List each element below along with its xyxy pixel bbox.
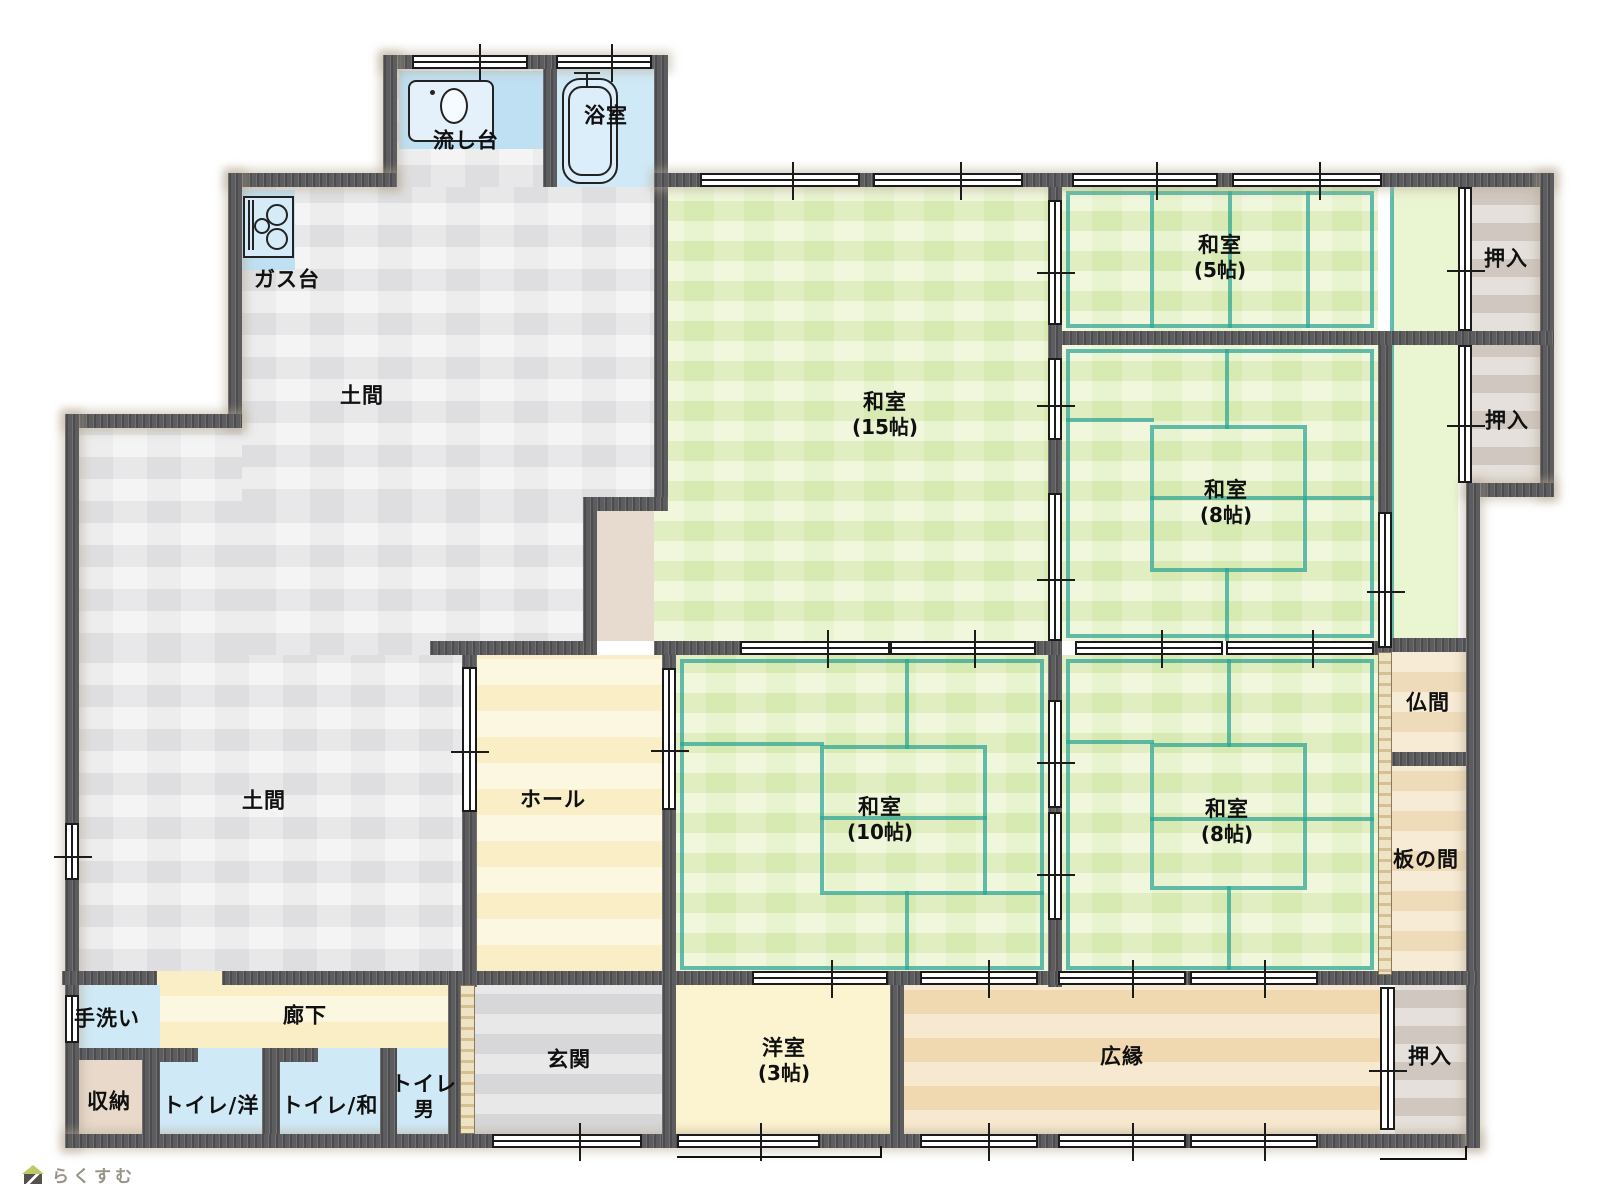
room-label-washitsu8-btm: 和室(8帖) [1201,797,1253,847]
room-doma-upper2 [242,511,583,655]
room-hall [477,655,662,971]
tatami-line [680,742,824,746]
window [412,55,528,69]
fusuma-door [1226,641,1374,655]
wall [142,1048,198,1062]
entrance-door [492,1134,642,1148]
step-area [597,511,654,641]
tatami-line [1066,418,1154,422]
room-label-doma1: 土間 [340,384,384,409]
tatami-line [1150,817,1374,821]
fusuma-door [890,641,1036,655]
shoji-door [1378,652,1392,975]
tatami-line [1225,568,1229,641]
tatami-line [1227,886,1231,970]
tatami-line [1150,191,1154,328]
wall [228,173,397,187]
sliding-door [1058,971,1186,985]
tatami-line [1066,740,1154,744]
shoji-door [460,985,475,1134]
wall [228,173,242,428]
fusuma-door [1048,700,1062,808]
wall [62,971,157,985]
fusuma-door [1048,358,1062,440]
wall [583,497,597,655]
sliding-door [1072,173,1218,187]
wall [654,641,740,655]
tatami-line [1306,191,1310,328]
sliding-door [677,1134,820,1148]
wall [430,641,597,655]
room-label-washitsu5: 和室(5帖) [1194,233,1246,283]
room-label-toilet-wa: トイレ/和 [282,1094,379,1119]
tatami-line [905,659,909,749]
wall [262,1048,318,1062]
room-label-toilet-men: トイレ男 [391,1072,457,1122]
sliding-door [462,667,477,812]
room-label-toilet-yo: トイレ/洋 [163,1094,260,1119]
wall [1378,345,1392,512]
room-label-hall: ホール [520,788,586,813]
sliding-door [1380,987,1395,1130]
wall [448,971,676,985]
dimension-line [880,1146,882,1158]
dimension-line [1465,1146,1467,1160]
sliding-door [752,971,888,985]
fusuma-door [740,641,890,655]
room-label-yokushitsu: 浴室 [584,104,628,129]
tatami-line [1225,349,1229,429]
room-label-genkan: 玄関 [547,1048,591,1073]
room-label-oshiire1: 押入 [1484,247,1528,272]
room-doma-left [79,428,242,655]
sliding-door [1458,187,1472,331]
dimension-line [677,1156,882,1158]
fusuma-door [1075,641,1223,655]
room-label-doma2: 土間 [242,789,286,814]
site-logo: らくすむ [22,1162,136,1187]
wall [1466,483,1480,1148]
floorplan: 流し台 浴室 ガス台 土間 土間 和室(15帖) 和室(5帖) 押入 押入 和室… [0,0,1600,1200]
east-engawa-strip [1392,187,1458,652]
room-label-oshiire-btm: 押入 [1408,1045,1452,1070]
tatami-line [1227,659,1231,747]
sliding-door [1190,971,1318,985]
bathtub-icon [562,78,618,184]
room-doma-upper [242,187,654,511]
room-label-washitsu10: 和室(10帖) [847,795,913,845]
stove-icon [243,196,294,258]
wall [662,971,676,1148]
sliding-door [1048,200,1062,325]
rouka-opening [157,971,222,985]
room-label-washitsu8-mid: 和室(8帖) [1200,478,1252,528]
room-label-oshiire2: 押入 [1485,409,1529,434]
room-label-gasudai: ガス台 [254,268,320,293]
tatami-line [983,891,1044,895]
room-label-nagashidai: 流し台 [433,129,499,154]
wall [1036,641,1062,655]
sliding-door [920,971,1038,985]
sliding-door [1190,1134,1318,1148]
wall [890,971,904,1148]
door [65,823,79,880]
logo-text: らくすむ [52,1162,136,1187]
house-icon [22,1165,44,1185]
dimension-line [1380,1158,1467,1160]
room-label-tearai: 手洗い [74,1007,140,1032]
sliding-door [920,1134,1038,1148]
sliding-door [1232,173,1382,187]
tatami-line [905,891,909,970]
tatami-line [1150,496,1374,500]
room-label-hiroen: 広縁 [1100,1045,1144,1070]
room-label-itanoma: 板の間 [1393,848,1459,873]
room-label-butsuma: 仏間 [1406,691,1450,716]
window [700,173,860,187]
wall [65,414,242,428]
sliding-door [1058,1134,1186,1148]
room-label-youshitsu3: 洋室(3帖) [758,1036,810,1086]
fusuma-door [1048,493,1062,641]
wall [383,55,397,187]
fusuma-door [1048,812,1062,920]
wall [222,971,462,985]
wall [583,497,668,511]
room-label-shuno: 収納 [87,1090,131,1115]
sliding-door [1458,345,1472,483]
window [556,55,652,69]
window [873,173,1023,187]
wall [1048,331,1554,345]
room-label-rouka: 廊下 [283,1004,327,1029]
sliding-door [662,668,676,810]
room-label-washitsu15: 和室(15帖) [852,390,918,440]
wall [654,55,668,511]
wall [543,69,557,187]
sliding-door [1378,512,1392,648]
wall [65,1048,142,1060]
